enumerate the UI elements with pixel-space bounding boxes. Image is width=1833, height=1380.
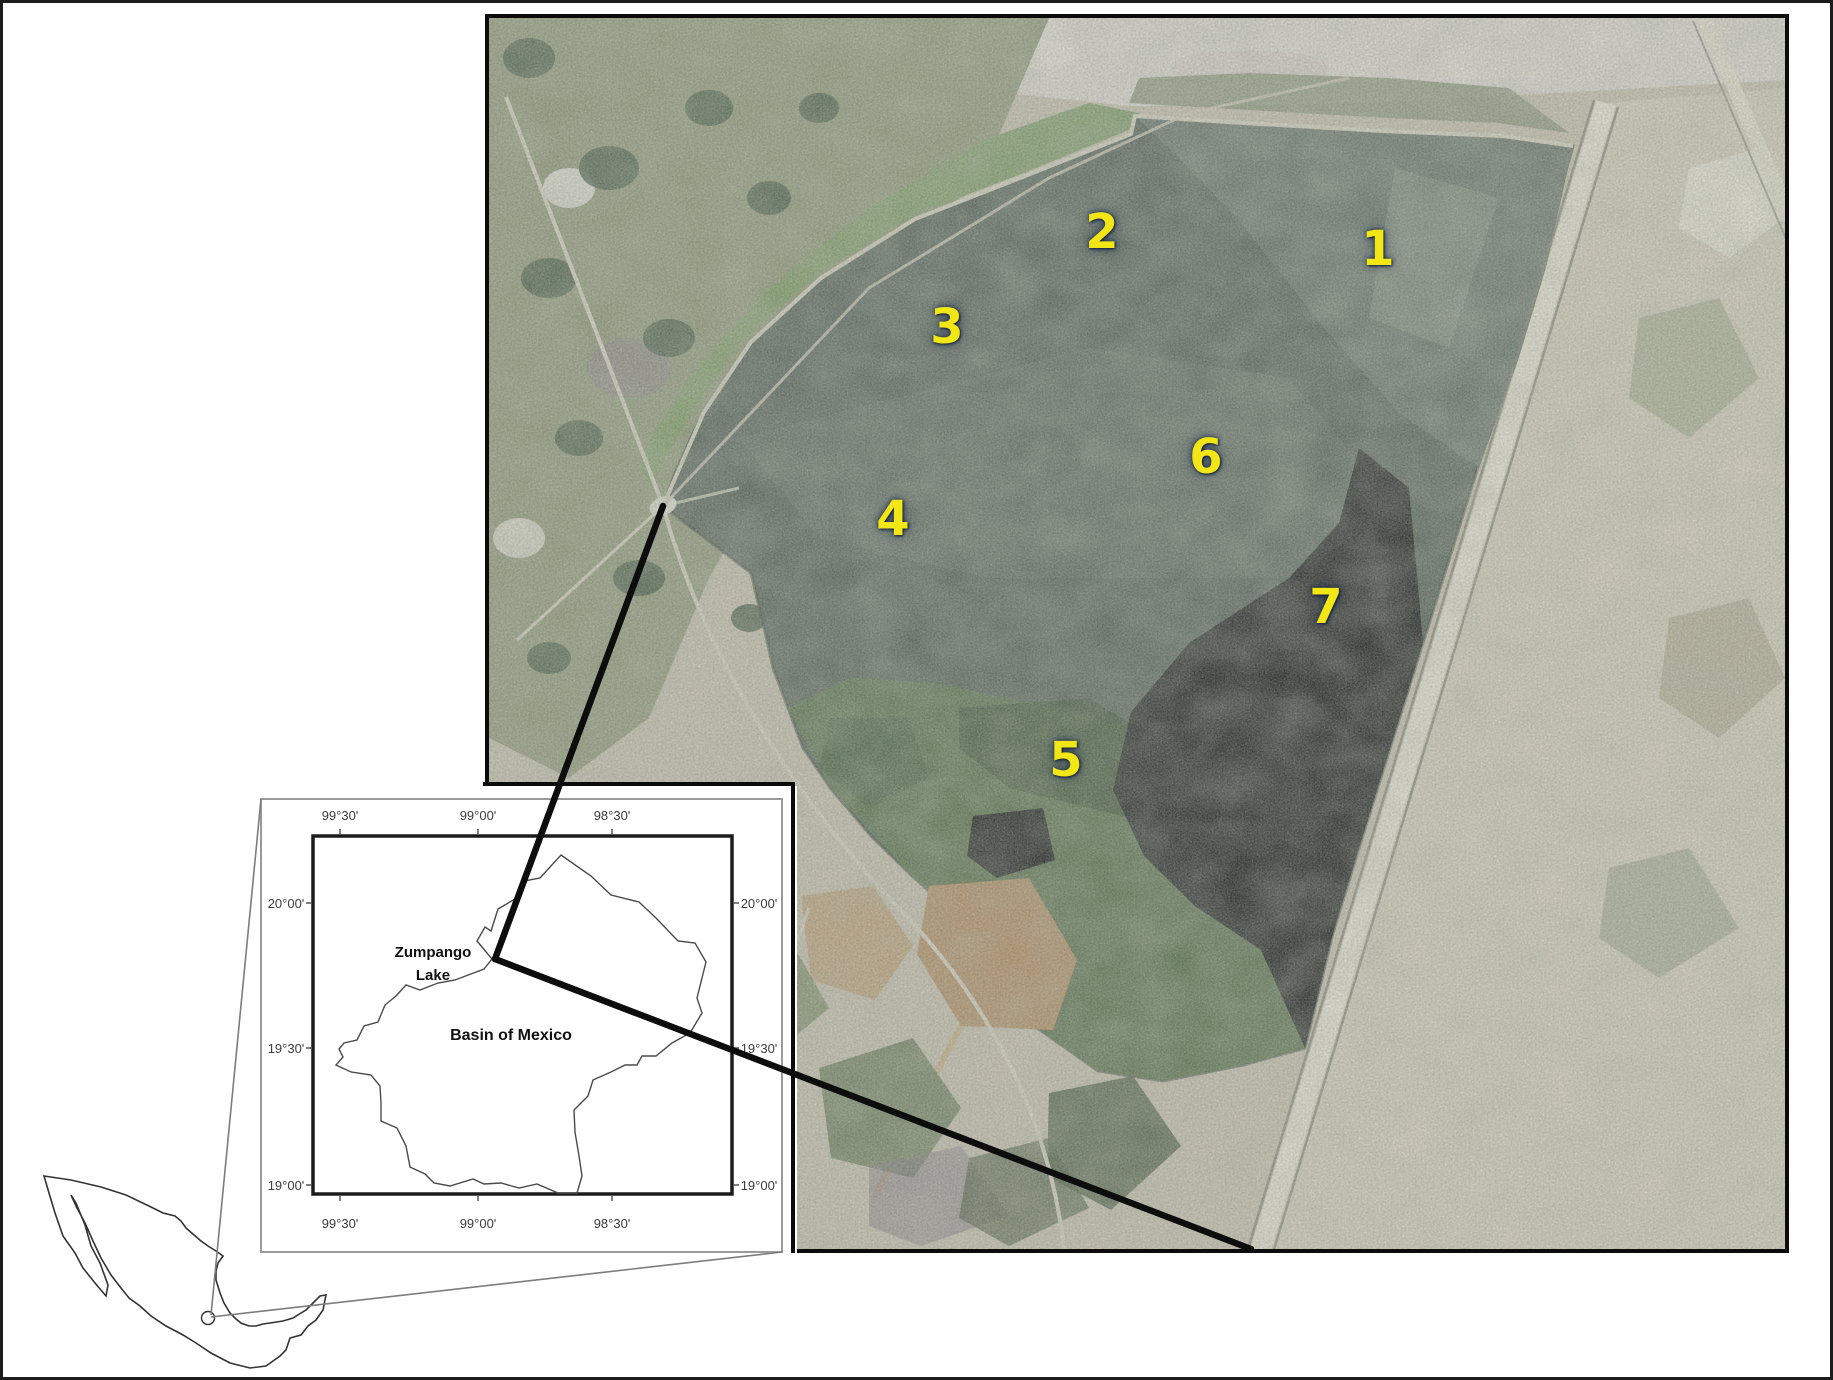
mexico-outline [44,1176,326,1368]
mexico-map [31,1163,331,1375]
lat-label-right: 19°00' [741,1178,778,1193]
lon-label-bottom: 98°30' [594,1216,631,1231]
lake-label-line2: Lake [416,967,450,984]
site-marker-5: 5 [1049,736,1082,784]
site-marker-3: 3 [930,303,963,351]
lake-label-line1: Zumpango [395,944,472,961]
lat-label-left: 19°30' [268,1041,305,1056]
site-marker-2: 2 [1085,208,1118,256]
site-marker-7: 7 [1309,583,1342,631]
image-cut-border-top [483,782,795,786]
figure-border: 1 2 3 4 5 6 7 99°30' 99°00' 98°30' [0,0,1833,1380]
site-marker-1: 1 [1361,225,1394,273]
lon-label-bottom: 99°00' [460,1216,497,1231]
location-circle [202,1312,215,1325]
lon-label-top: 98°30' [594,808,631,823]
region-label: Basin of Mexico [450,1027,572,1044]
inset-outer-frame [261,799,782,1252]
lat-label-left: 20°00' [268,896,305,911]
lat-label-right: 20°00' [741,896,778,911]
inset-map: 99°30' 99°00' 98°30' 99°30' 99°00' 98°30… [253,791,791,1261]
lon-label-top: 99°30' [322,808,359,823]
site-marker-4: 4 [876,495,909,543]
image-cut-border-right [791,782,795,1253]
lon-label-top: 99°00' [460,808,497,823]
lat-label-right: 19°30' [741,1041,778,1056]
site-marker-6: 6 [1189,433,1222,481]
